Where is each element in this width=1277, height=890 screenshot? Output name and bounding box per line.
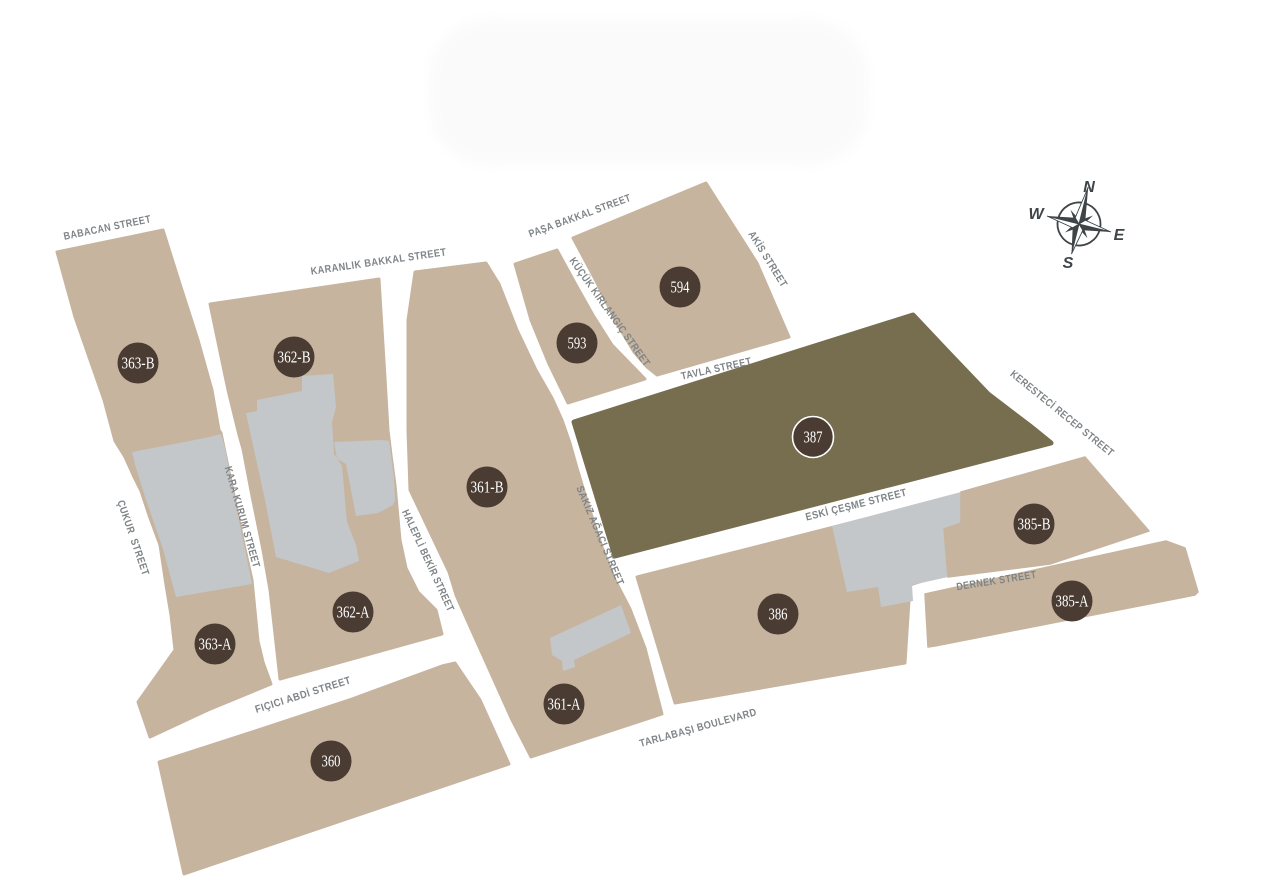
- svg-text:W: W: [1028, 206, 1045, 223]
- svg-text:594: 594: [671, 278, 690, 297]
- svg-text:S: S: [1063, 255, 1074, 272]
- svg-text:362-A: 362-A: [337, 603, 370, 622]
- svg-text:362-B: 362-B: [278, 348, 311, 367]
- svg-text:363-B: 363-B: [122, 354, 155, 373]
- svg-text:387: 387: [804, 428, 823, 447]
- svg-text:385-B: 385-B: [1018, 515, 1051, 534]
- svg-text:385-A: 385-A: [1056, 592, 1089, 611]
- svg-text:386: 386: [769, 605, 788, 624]
- svg-text:E: E: [1114, 227, 1126, 244]
- svg-text:593: 593: [568, 334, 587, 353]
- svg-text:361-A: 361-A: [548, 695, 581, 714]
- svg-text:361-B: 361-B: [471, 478, 504, 497]
- svg-text:N: N: [1083, 179, 1095, 196]
- svg-text:363-A: 363-A: [199, 635, 232, 654]
- svg-text:360: 360: [322, 752, 341, 771]
